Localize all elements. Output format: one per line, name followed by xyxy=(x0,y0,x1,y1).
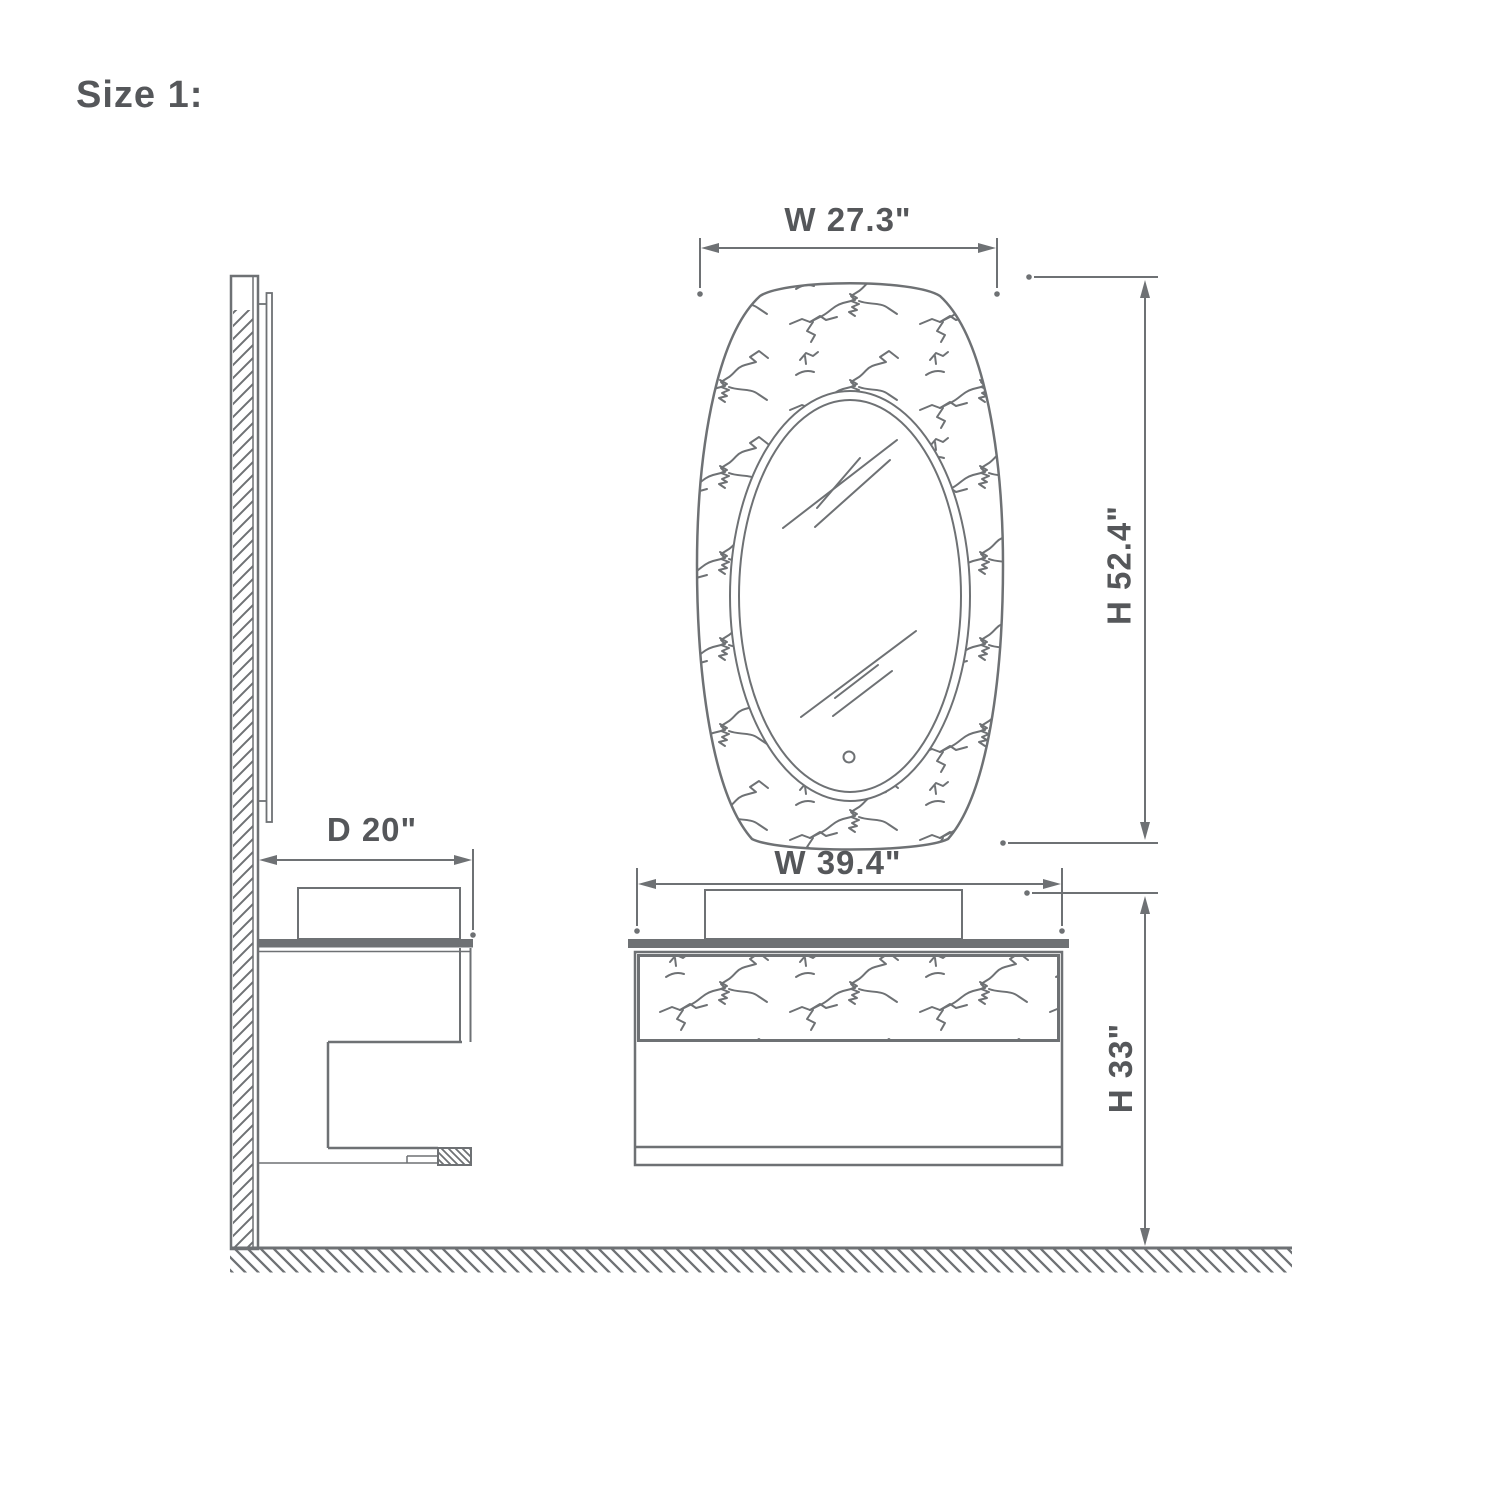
dim-label-vanity-width: W 39.4" xyxy=(738,845,938,881)
touch-sensor-dot xyxy=(844,752,855,763)
side-view xyxy=(231,276,473,1249)
vanity-front-view xyxy=(628,890,1069,1165)
countertop-side xyxy=(258,939,473,948)
dim-label-vanity-height: H 33" xyxy=(1101,970,1141,1166)
countertop-front xyxy=(628,939,1069,948)
dim-label-depth: D 20" xyxy=(272,812,472,848)
page-title: Size 1: xyxy=(76,74,203,117)
wall-section xyxy=(231,276,258,1249)
marble-drawer-front xyxy=(639,956,1059,1041)
mirror-front-view xyxy=(697,283,1003,849)
dim-label-mirror-height: H 52.4" xyxy=(1100,463,1140,668)
dim-label-mirror-width: W 27.3" xyxy=(748,202,948,238)
basin-side xyxy=(298,888,460,939)
cabinet-bottom-rail-section xyxy=(438,1148,471,1165)
basin-front xyxy=(705,890,962,939)
floor xyxy=(230,1248,1292,1273)
vanity-side-profile xyxy=(257,888,473,1165)
mirror-glass xyxy=(730,391,970,801)
diagram-page: Size 1: W 27.3" H 52.4" W 39.4" H 33" D … xyxy=(0,0,1500,1500)
